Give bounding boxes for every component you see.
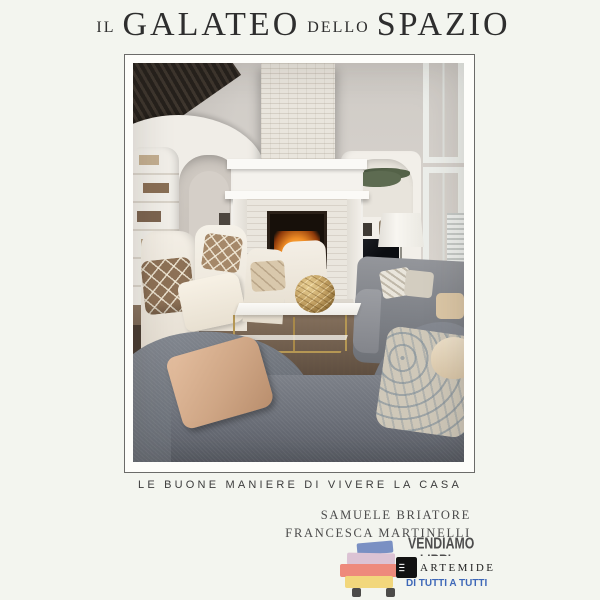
title-word-il: IL [96, 19, 115, 36]
trolley-wheel [386, 588, 395, 597]
trolley-book-yellow [345, 576, 393, 588]
book-title: ILGALATEODELLOSPAZIO [0, 6, 600, 44]
artemide-mark-icon [396, 557, 417, 578]
photo-vignette [133, 63, 464, 462]
title-word-spazio: SPAZIO [377, 6, 511, 43]
trolley-wheel [352, 588, 361, 597]
bookseller-trolley-logo [340, 540, 398, 598]
book-cover: ILGALATEODELLOSPAZIO [0, 0, 600, 600]
living-room-photo [133, 63, 464, 462]
book-subtitle: LE BUONE MANIERE DI VIVERE LA CASA [0, 479, 600, 491]
publisher-name: ARTEMIDE [420, 562, 495, 574]
title-word-galateo: GALATEO [123, 6, 301, 43]
publisher-logo: ARTEMIDE [396, 556, 499, 579]
watermark-di-tutti-a-tutti: DI TUTTI A TUTTI [406, 577, 487, 589]
author-line-1: SAMUELE BRIATORE [285, 507, 471, 525]
title-word-dello: DELLO [307, 19, 369, 36]
photo-frame [124, 54, 475, 473]
